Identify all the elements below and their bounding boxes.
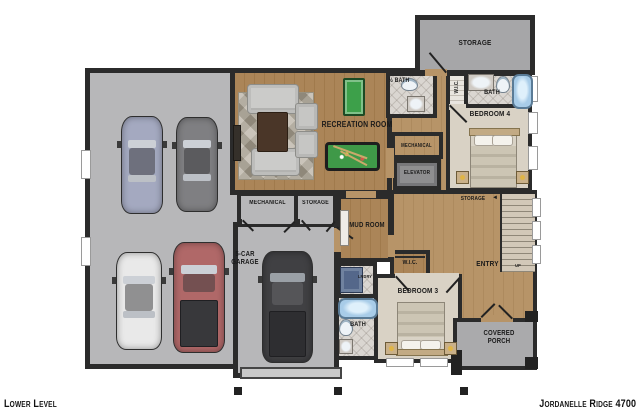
label-bath-bedroom3: BATH <box>343 321 374 328</box>
car-roof <box>184 148 210 174</box>
bed-bedroom4 <box>470 128 517 188</box>
label-mud-room: MUD ROOM <box>349 222 385 230</box>
label-mechanical-garage: MECHANICAL <box>243 200 292 207</box>
windshield <box>123 276 154 285</box>
coffee-table <box>257 112 288 152</box>
window <box>81 150 91 179</box>
side-mirror <box>218 142 222 149</box>
label-stairs-up: UP <box>511 263 525 268</box>
window <box>420 358 448 367</box>
car-roof <box>129 148 155 174</box>
side-mirror <box>162 277 166 284</box>
label-recreation-room: RECREATION ROOM <box>306 120 407 129</box>
bathtub <box>338 298 378 319</box>
rear-window <box>123 311 154 318</box>
plan-title: Jordanelle Ridge 4700 <box>539 398 636 410</box>
windshield <box>183 140 212 149</box>
nightstand <box>516 171 529 184</box>
dart-board <box>343 78 365 116</box>
headboard <box>396 349 448 356</box>
door-opening <box>395 273 459 279</box>
nightstand <box>385 342 398 355</box>
pillow <box>492 135 513 146</box>
window <box>532 245 541 264</box>
label-storage-garage: STORAGE <box>298 200 333 207</box>
side-mirror <box>225 268 229 275</box>
footing-post <box>460 387 468 395</box>
floor-plan: RECREATION ROOM 5-CAR GARAGE STORAGE ½ B… <box>0 0 640 414</box>
vehicle-sedan-silver <box>121 116 163 214</box>
level-title: Lower Level <box>4 398 57 410</box>
cab-roof <box>183 274 215 292</box>
vehicle-sedan-gray <box>176 117 218 212</box>
footing-post <box>334 387 342 395</box>
washing-machine <box>340 267 363 293</box>
sofa <box>247 84 299 114</box>
blanket <box>471 146 516 187</box>
door-opening <box>386 148 394 178</box>
label-storage-upper: STORAGE <box>438 39 512 48</box>
car-roof <box>125 284 154 310</box>
label-mechanical-hall: MECHANICAL <box>396 144 436 150</box>
footing-post <box>234 387 242 395</box>
side-mirror <box>112 277 116 284</box>
rear-window <box>183 174 212 181</box>
window <box>386 358 414 367</box>
label-wic-bedroom3: W.I.C. <box>395 260 426 267</box>
door-opening <box>388 235 395 257</box>
door-opening <box>346 191 376 198</box>
window <box>532 198 541 217</box>
windshield <box>181 265 216 274</box>
porch-post <box>525 311 538 322</box>
label-laundry: LNDRY <box>354 274 376 279</box>
vehicle-suv-black <box>262 251 313 363</box>
closet-rod <box>395 256 425 258</box>
side-mirror <box>313 276 317 283</box>
window <box>81 237 91 266</box>
porch-post <box>525 357 538 369</box>
vehicle-sedan-white <box>116 252 162 350</box>
label-bedroom3: BEDROOM 3 <box>385 287 450 296</box>
window <box>532 221 541 240</box>
media-console <box>233 125 241 161</box>
truck-bed <box>180 300 219 348</box>
label-bedroom4: BEDROOM 4 <box>460 110 520 119</box>
garage-door <box>240 367 342 379</box>
side-mirror <box>163 141 167 148</box>
armchair <box>295 131 318 158</box>
bathtub <box>512 74 533 109</box>
windshield <box>128 140 157 149</box>
label-wic-bedroom4: W.I.C. <box>454 77 460 98</box>
side-mirror <box>172 142 176 149</box>
label-half-bath: ½ BATH <box>388 78 410 85</box>
blanket <box>398 303 444 337</box>
cargo-area <box>269 311 307 357</box>
rear-window <box>128 175 157 182</box>
mudroom-bench <box>340 210 349 246</box>
storage-access-arrow-icon: ◄ <box>492 195 498 201</box>
door-opening <box>242 218 294 224</box>
nightstand <box>456 171 469 184</box>
label-entry: ENTRY <box>464 260 511 269</box>
sofa <box>251 148 300 176</box>
vehicle-pickup-red <box>173 242 225 353</box>
label-covered-porch: COVERED PORCH <box>472 330 525 346</box>
car-roof <box>272 282 304 304</box>
label-garage: 5-CAR GARAGE <box>224 251 265 267</box>
label-elevator: ELEVATOR <box>397 170 437 176</box>
window <box>528 146 538 170</box>
bathroom-sink <box>339 339 353 354</box>
windshield <box>270 273 305 282</box>
side-mirror <box>169 268 173 275</box>
label-storage-understairs: STORAGE <box>458 196 489 202</box>
bed-bedroom3 <box>397 302 445 356</box>
side-mirror <box>258 276 262 283</box>
window <box>528 112 538 134</box>
side-mirror <box>117 141 121 148</box>
label-bath-bedroom4: BATH <box>475 89 509 96</box>
nightstand <box>444 342 457 355</box>
bathroom-sink <box>407 96 425 112</box>
